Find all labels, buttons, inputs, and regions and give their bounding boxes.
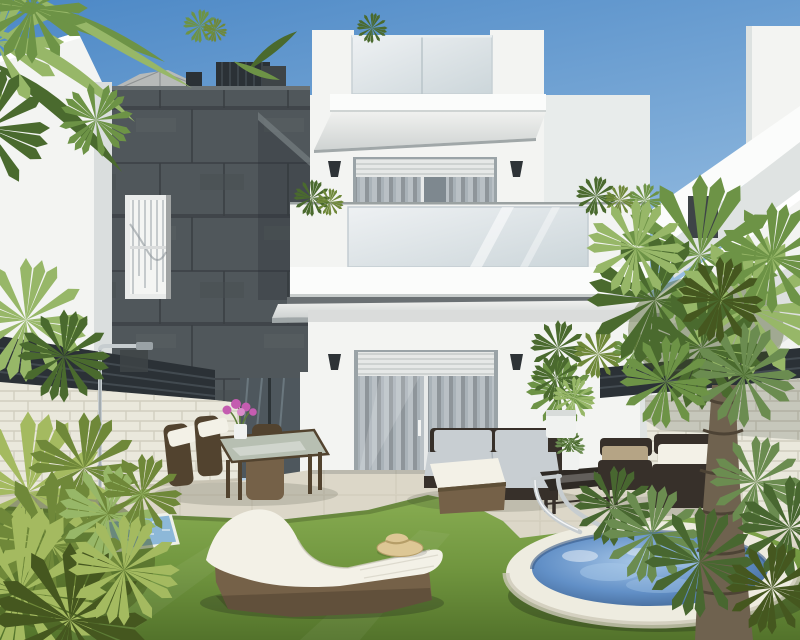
sofa-back-cushion-2 (495, 430, 553, 452)
sofa-back-cushion-1 (434, 430, 492, 452)
upper-window (353, 157, 497, 206)
ottoman (430, 458, 506, 514)
villa-render-canvas (0, 0, 800, 640)
villa-render-image (0, 0, 800, 640)
roof-fascia (330, 94, 546, 112)
stone-tower-window (125, 195, 171, 299)
